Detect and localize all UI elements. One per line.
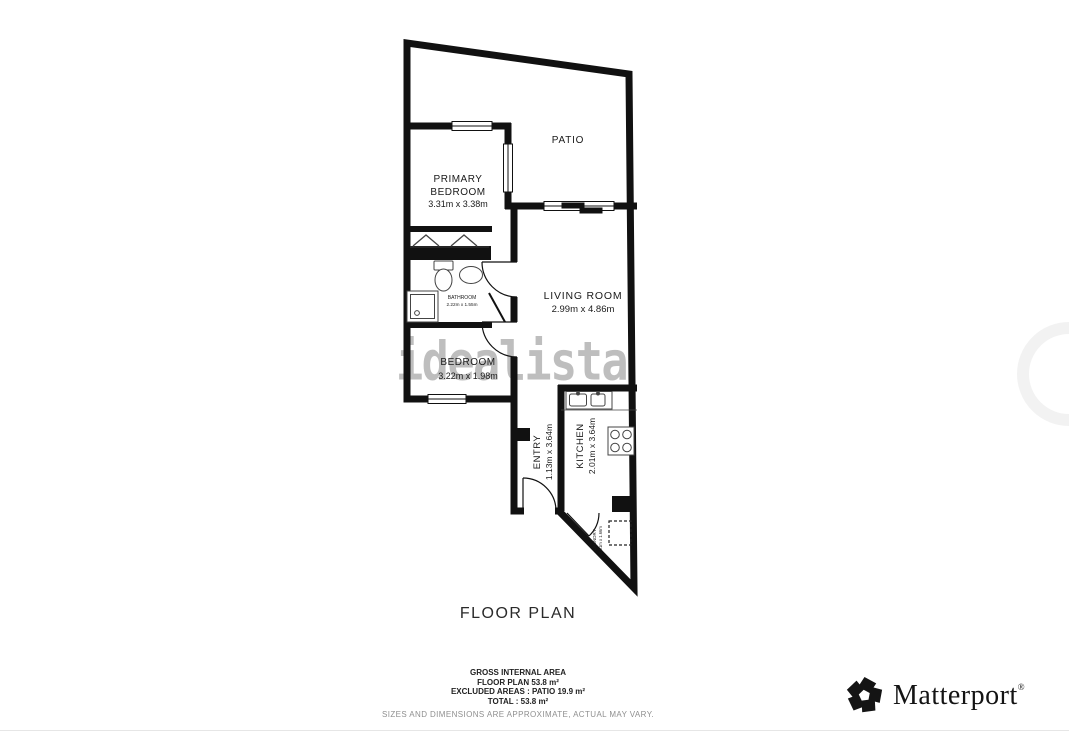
laundry-label: LAUNDRY: [592, 529, 597, 550]
matterport-wordmark: Matterport®: [893, 680, 1025, 712]
registered-mark: ®: [1018, 682, 1025, 692]
living-room-dims: 2.99m x 4.86m: [552, 304, 615, 315]
room-labels: PATIO PRIMARY BEDROOM 3.31m x 3.38m BATH…: [428, 135, 622, 554]
disclaimer-text: SIZES AND DIMENSIONS ARE APPROXIMATE, AC…: [382, 710, 654, 719]
kitchen-label: KITCHEN: [575, 423, 586, 468]
kitchen-sink-icon: [561, 392, 637, 411]
floor-plan-area: FLOOR PLAN 53.8 m²: [451, 678, 585, 688]
area-summary: GROSS INTERNAL AREA FLOOR PLAN 53.8 m² E…: [451, 668, 585, 706]
bathroom-label: BATHROOM: [448, 295, 477, 301]
total-area: TOTAL : 53.8 m²: [451, 697, 585, 707]
patio-living-window: [544, 202, 614, 214]
entry-wall-notch: [514, 428, 530, 441]
bedroom-window: [428, 395, 466, 404]
matterport-pinwheel-icon: [845, 676, 884, 715]
floor-plan-drawing: PATIO PRIMARY BEDROOM 3.31m x 3.38m BATH…: [395, 28, 653, 600]
entry-door: [523, 478, 556, 516]
bedroom-dims: 3.22m x 1.98m: [438, 371, 498, 381]
matterport-logo: Matterport®: [845, 676, 1025, 715]
living-room-label: LIVING ROOM: [544, 290, 623, 302]
primary-bedroom-label-2: BEDROOM: [430, 187, 485, 198]
primary-bedroom-window: [452, 122, 492, 131]
closet-shelf: [405, 246, 491, 260]
primary-patio-window: [504, 144, 513, 192]
stove-icon: [608, 427, 634, 455]
entry-dims: 1.13m x 3.64m: [544, 424, 554, 480]
primary-bedroom-dims: 3.31m x 3.38m: [428, 199, 488, 209]
bathroom-inner-door: [489, 293, 505, 322]
page-title: FLOOR PLAN: [460, 605, 576, 623]
entry-label: ENTRY: [532, 435, 543, 470]
laundry-dims: 2.01m x 1.66m: [598, 526, 603, 554]
bathroom-sink-icon: [460, 267, 483, 284]
shower-icon: [407, 291, 438, 322]
bedroom-label: BEDROOM: [440, 357, 495, 368]
kitchen-corner-block: [612, 496, 636, 512]
primary-bedroom-label-1: PRIMARY: [434, 174, 483, 185]
bottom-divider: [0, 730, 1069, 731]
excluded-areas: EXCLUDED AREAS : PATIO 19.9 m²: [451, 687, 585, 697]
closet-hangers-icon: [410, 235, 489, 247]
washer-icon: [609, 521, 631, 545]
floor-plan-page: idealista: [0, 0, 1069, 734]
bathroom-dims: 2.22m x 1.55m: [446, 302, 477, 307]
gross-internal-area-label: GROSS INTERNAL AREA: [451, 668, 585, 678]
toilet-icon: [434, 261, 453, 291]
walls: [404, 43, 637, 588]
bathroom-door: [482, 262, 517, 297]
patio-label: PATIO: [552, 135, 585, 146]
kitchen-dims: 2.01m x 3.64m: [587, 418, 597, 474]
watermark-circle-fragment: [1017, 322, 1069, 426]
